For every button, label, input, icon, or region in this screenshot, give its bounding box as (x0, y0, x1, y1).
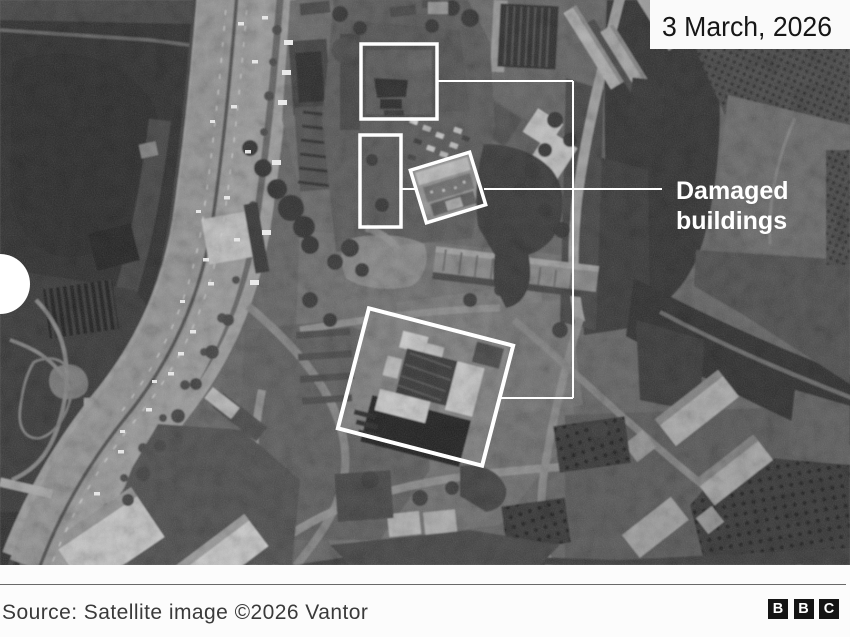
svg-text:buildings: buildings (676, 207, 787, 235)
svg-text:Damaged: Damaged (676, 177, 789, 205)
svg-text:3 March, 2026: 3 March, 2026 (662, 11, 832, 42)
